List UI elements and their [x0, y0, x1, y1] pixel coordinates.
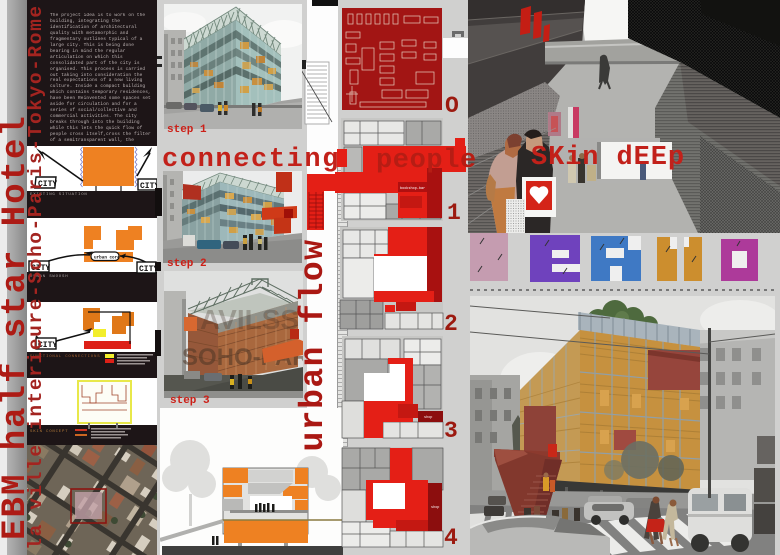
- svg-text:shop: shop: [431, 505, 439, 510]
- svg-text:AVILSS: AVILSS: [200, 304, 299, 335]
- svg-text:urban core: urban core: [94, 255, 120, 260]
- svg-text:bookshop-bar: bookshop-bar: [400, 186, 425, 191]
- svg-text:shop: shop: [424, 415, 432, 420]
